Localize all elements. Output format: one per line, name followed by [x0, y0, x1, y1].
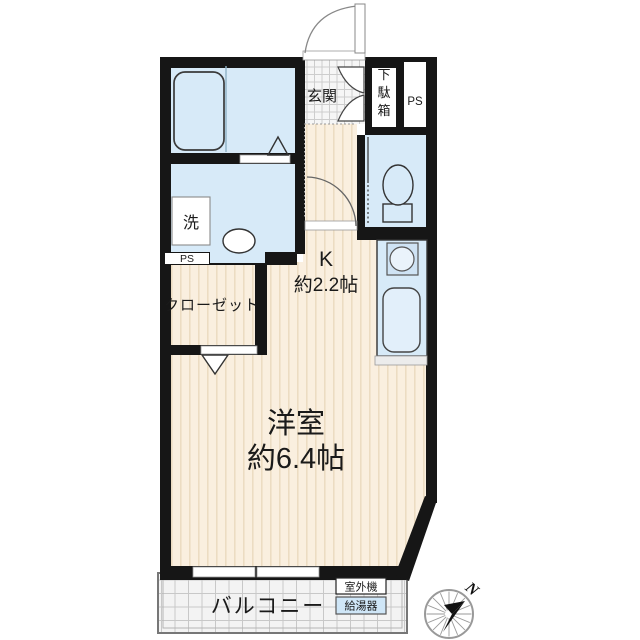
kitchen-size-label: 約2.2帖 — [294, 274, 358, 296]
hallway-door-threshold — [305, 221, 357, 230]
bathroom-floor — [168, 65, 297, 155]
laundry-label: 洗 — [183, 214, 199, 232]
main-room-label: 洋室 — [267, 407, 325, 440]
washbasin — [223, 229, 255, 253]
wall — [160, 57, 171, 580]
wall — [365, 57, 372, 135]
kitchen-sink — [383, 288, 420, 352]
wall — [160, 57, 305, 68]
window-left — [193, 567, 255, 577]
toilet-bowl — [383, 165, 413, 205]
closet-label: クローゼット — [164, 297, 260, 314]
kitchen-counter-base — [375, 356, 427, 365]
main-room-size-label: 約6.4帖 — [247, 442, 345, 475]
closet-door-opening — [201, 346, 257, 354]
wall — [357, 135, 365, 240]
entrance-label: 玄関 — [307, 88, 337, 105]
stove-burner — [390, 247, 414, 271]
floor-plan: N 玄関 下 駄 箱 PS 洗 PS クローゼット K 約2.2帖 洋室 約6.… — [0, 0, 640, 640]
window-right — [257, 567, 319, 577]
water-heater-label: 給湯器 — [345, 599, 378, 613]
wall — [396, 62, 404, 127]
outdoor-ac-unit-label: 室外機 — [345, 580, 378, 594]
shoe-cabinet-label-char: 箱 — [377, 103, 390, 118]
entrance-door-swing-arc — [305, 6, 357, 53]
shoe-cabinet-label-char: 駄 — [377, 85, 390, 100]
pipe-space-side-label: PS — [180, 253, 194, 265]
compass: N — [425, 579, 483, 638]
wall — [365, 127, 437, 135]
floor-plan-canvas: N 玄関 下 駄 箱 PS 洗 PS クローゼット K 約2.2帖 洋室 約6.… — [0, 0, 640, 640]
bathroom-door-opening — [240, 155, 290, 163]
wall — [357, 227, 437, 240]
shoe-cabinet-label-char: 下 — [377, 67, 390, 82]
pipe-space-top-box — [404, 62, 426, 72]
entrance-door-leaf — [355, 4, 365, 53]
pipe-space-top-label: PS — [407, 96, 423, 108]
balcony-label: バルコニー — [211, 595, 326, 618]
kitchen-label: K — [319, 248, 333, 271]
